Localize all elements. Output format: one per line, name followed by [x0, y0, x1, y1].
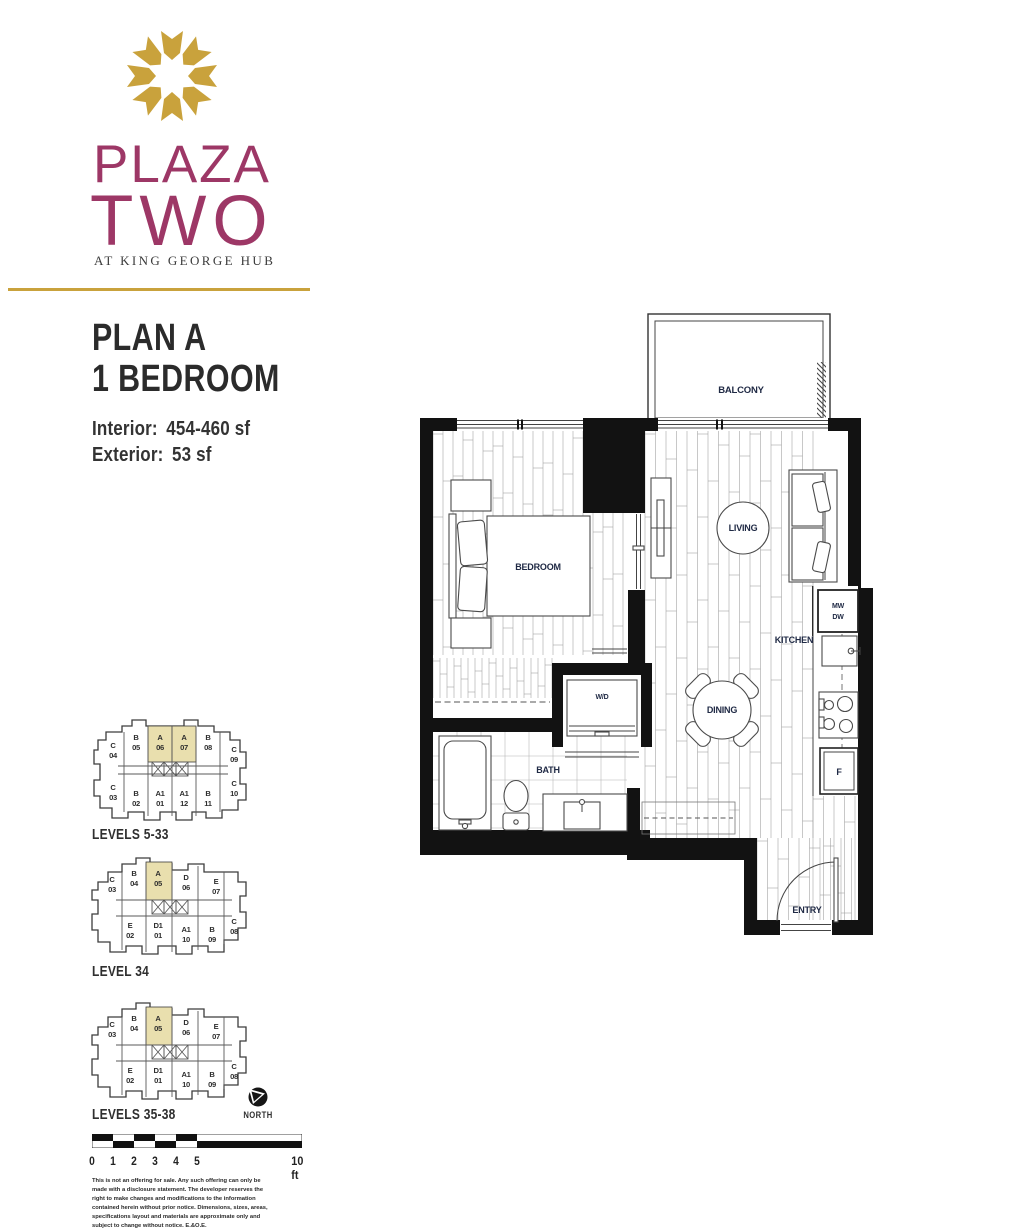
- unit-label: A1: [155, 789, 165, 798]
- scale-tick: 0: [89, 1154, 95, 1168]
- unit-number: 07: [212, 887, 220, 896]
- exterior-spec: Exterior:53 sf: [92, 442, 212, 468]
- kitchen-sink: [822, 636, 860, 666]
- north-label: NORTH: [241, 1110, 275, 1120]
- unit-label: A1: [181, 925, 191, 934]
- tv-console: [651, 478, 671, 578]
- unit-label: D1: [153, 921, 163, 930]
- unit-number: 03: [108, 885, 116, 894]
- unit-label: C: [109, 1020, 115, 1029]
- unit-number: 08: [230, 1072, 238, 1081]
- unit-number: 02: [126, 931, 134, 940]
- unit-label: A1: [179, 789, 189, 798]
- plan-title-line2: 1 BEDROOM: [92, 359, 280, 400]
- unit-label: E: [128, 1066, 133, 1075]
- unit-number: 08: [230, 927, 238, 936]
- keyplan-levels-5-33: C04B05A06A07B08C09C03B02A101A112B11C10: [88, 712, 258, 827]
- unit-label: A: [155, 1014, 161, 1023]
- unit-number: 06: [156, 743, 164, 752]
- nightstand-bottom: [451, 618, 491, 648]
- unit-number: 03: [108, 1030, 116, 1039]
- washer-dryer: [565, 680, 639, 757]
- unit-number: 05: [154, 879, 163, 888]
- unit-label: C: [231, 917, 237, 926]
- toilet: [503, 781, 529, 831]
- unit-label: E: [128, 921, 133, 930]
- scale-tick: 5: [194, 1154, 200, 1168]
- dining-label: DINING: [707, 705, 737, 715]
- scale-tick: 1: [110, 1154, 116, 1168]
- bath-label: BATH: [536, 765, 560, 775]
- keyplan2-caption: LEVEL 34: [92, 963, 149, 980]
- unit-number: 06: [182, 883, 190, 892]
- scale-bar: [92, 1134, 302, 1148]
- unit-number: 12: [180, 799, 188, 808]
- unit-label: E: [214, 877, 219, 886]
- exterior-value: 53 sf: [172, 444, 212, 466]
- living-label: LIVING: [729, 523, 758, 533]
- unit-number: 09: [208, 1080, 216, 1089]
- unit-number: 09: [230, 755, 238, 764]
- unit-number: 03: [109, 793, 117, 802]
- mw-label: MW: [832, 603, 845, 610]
- unit-number: 08: [204, 743, 212, 752]
- unit-number: 04: [130, 879, 139, 888]
- unit-number: 01: [154, 1076, 163, 1085]
- unit-number: 10: [182, 935, 190, 944]
- brand-two: TWO: [90, 186, 274, 257]
- scale-end-label: 10 ft: [291, 1154, 303, 1182]
- microwave-dishwasher: [818, 590, 858, 632]
- unit-number: 07: [180, 743, 188, 752]
- unit-number: 02: [132, 799, 140, 808]
- unit-label: E: [214, 1022, 219, 1031]
- unit-label: B: [209, 925, 215, 934]
- unit-label: C: [231, 745, 237, 754]
- bedroom-shelf: [592, 649, 627, 653]
- unit-number: 02: [126, 1076, 134, 1085]
- unit-label: A1: [181, 1070, 191, 1079]
- bedroom-closet-hatch: [433, 658, 552, 698]
- disclaimer-text: This is not an offering for sale. Any su…: [92, 1177, 272, 1230]
- unit-number: 05: [132, 743, 141, 752]
- unit-number: 06: [182, 1028, 190, 1037]
- unit-number: 01: [154, 931, 163, 940]
- living-window: [658, 418, 828, 431]
- keyplan1-caption: LEVELS 5-33: [92, 826, 169, 843]
- scale-tick: 3: [152, 1154, 158, 1168]
- unit-number: 09: [208, 935, 216, 944]
- unit-number: 07: [212, 1032, 220, 1041]
- unit-label: B: [205, 733, 211, 742]
- unit-label: B: [131, 869, 137, 878]
- unit-label: A: [157, 733, 163, 742]
- plan-title-line1: PLAN A: [92, 318, 206, 359]
- unit-label: C: [231, 1062, 237, 1071]
- unit-label: B: [131, 1014, 137, 1023]
- unit-label: B: [133, 789, 139, 798]
- north-indicator: NORTH: [238, 1086, 278, 1120]
- interior-spec: Interior:454-460 sf: [92, 416, 250, 442]
- unit-number: 11: [204, 799, 213, 808]
- scale-bar-ticks: 10 ft 012345: [92, 1154, 304, 1168]
- unit-label: C: [110, 741, 116, 750]
- unit-label: C: [109, 875, 115, 884]
- unit-number: 10: [182, 1080, 190, 1089]
- scale-tick: 4: [173, 1154, 179, 1168]
- bath-vanity: [543, 794, 627, 831]
- unit-label: B: [205, 789, 211, 798]
- balcony-label: BALCONY: [718, 385, 764, 396]
- exterior-label: Exterior:: [92, 444, 163, 466]
- unit-label: D1: [153, 1066, 163, 1075]
- dw-label: DW: [832, 614, 844, 621]
- brand-tagline: AT KING GEORGE HUB: [94, 253, 275, 269]
- unit-label: D: [183, 873, 189, 882]
- unit-label: C: [231, 779, 237, 788]
- unit-number: 05: [154, 1024, 163, 1033]
- interior-value: 454-460 sf: [166, 418, 250, 440]
- unit-number: 10: [230, 789, 238, 798]
- balcony-inner: [655, 321, 823, 418]
- floorplan-drawing: BALCONY LIVING BEDROOM KITCHEN DINING BA…: [415, 300, 885, 940]
- floorplan-sheet: PLAZA TWO AT KING GEORGE HUB PLAN A 1 BE…: [0, 0, 1018, 1230]
- scale-tick: 2: [131, 1154, 137, 1168]
- fridge-label: F: [836, 767, 842, 777]
- starburst-icon: [122, 26, 222, 126]
- gold-divider: [8, 288, 310, 291]
- unit-label: B: [209, 1070, 215, 1079]
- interior-label: Interior:: [92, 418, 158, 440]
- unit-number: 04: [109, 751, 118, 760]
- bedroom-window: [457, 418, 583, 431]
- nightstand-top: [451, 480, 491, 511]
- unit-label: A: [181, 733, 187, 742]
- sofa: [789, 470, 837, 582]
- bathtub: [439, 736, 491, 830]
- keyplan3-caption: LEVELS 35-38: [92, 1106, 176, 1123]
- keyplan-level-34: C03B04A05D06E07E02D101A110B09C08: [88, 852, 268, 967]
- unit-label: B: [133, 733, 139, 742]
- entry-closet: [642, 802, 735, 834]
- unit-label: A: [155, 869, 161, 878]
- kitchen-label: KITCHEN: [775, 635, 814, 645]
- wd-label: W/D: [595, 694, 608, 701]
- bedroom-sliding-door: [633, 514, 644, 589]
- stove: [819, 692, 858, 738]
- unit-number: 01: [156, 799, 165, 808]
- north-arrow-icon: [238, 1086, 278, 1110]
- entry-label: ENTRY: [792, 905, 821, 915]
- unit-label: C: [110, 783, 116, 792]
- unit-number: 04: [130, 1024, 139, 1033]
- bedroom-label: BEDROOM: [515, 562, 561, 572]
- balcony-outline: [648, 314, 830, 425]
- unit-label: D: [183, 1018, 189, 1027]
- entry-threshold: [780, 920, 832, 935]
